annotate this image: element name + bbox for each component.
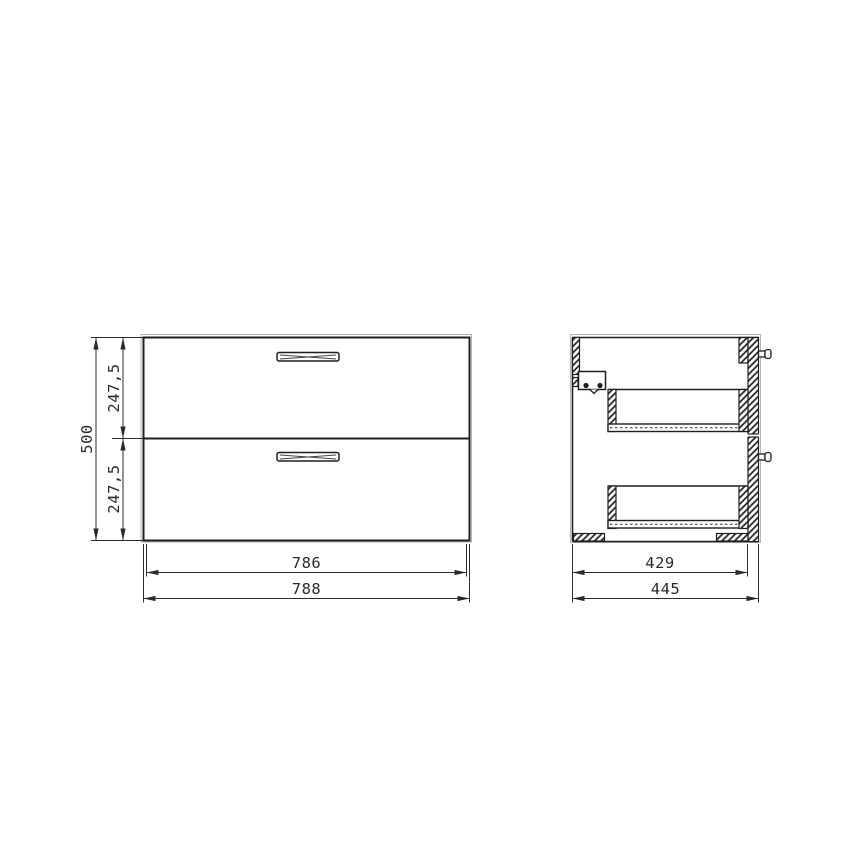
back-panel-section-foot <box>573 378 579 387</box>
dim-text-total-depth: 445 <box>651 580 681 598</box>
wall-mount-bracket <box>579 372 606 394</box>
side-handle-top-cap <box>765 350 771 359</box>
bracket-screw-dot <box>597 383 602 388</box>
dim-text-body-width: 788 <box>292 580 322 598</box>
side-handle-top-stem <box>759 351 766 357</box>
bottom-panel-section-left <box>574 534 605 542</box>
dim-text-lower-drawer-height: 247,5 <box>105 464 123 513</box>
side-view-dimensions: 429 445 <box>573 544 759 603</box>
drawer-box-lower-front-wall <box>739 486 748 529</box>
dim-text-front-width: 786 <box>292 554 322 572</box>
bottom-panel-section-right <box>717 534 749 542</box>
technical-drawing-page: 500 247,5 247,5 786 788 <box>0 0 868 868</box>
side-handle-bottom-cap <box>765 453 771 462</box>
front-view <box>141 335 472 543</box>
drawer-box-lower <box>608 486 748 529</box>
side-handle-top <box>759 350 772 359</box>
side-handle-bottom <box>759 453 772 462</box>
dim-text-inner-depth: 429 <box>645 554 675 572</box>
side-view-section <box>571 335 772 543</box>
drawer-box-upper-front-wall <box>739 390 748 432</box>
side-body-ghost-outline <box>571 335 761 543</box>
bracket-screw-dot <box>583 383 588 388</box>
top-rail-section <box>739 338 748 364</box>
side-handle-bottom-stem <box>759 454 766 460</box>
back-panel-section <box>573 338 580 375</box>
drawer-handle-top <box>277 353 339 362</box>
technical-drawing-canvas: 500 247,5 247,5 786 788 <box>0 0 868 868</box>
drawer-box-upper <box>608 390 748 432</box>
bracket-hook-notch <box>590 390 598 394</box>
drawer-fronts-section <box>748 338 759 542</box>
dim-text-upper-drawer-height: 247,5 <box>105 363 123 412</box>
drawer-handle-bottom <box>277 453 339 462</box>
dim-text-total-height: 500 <box>78 424 96 454</box>
